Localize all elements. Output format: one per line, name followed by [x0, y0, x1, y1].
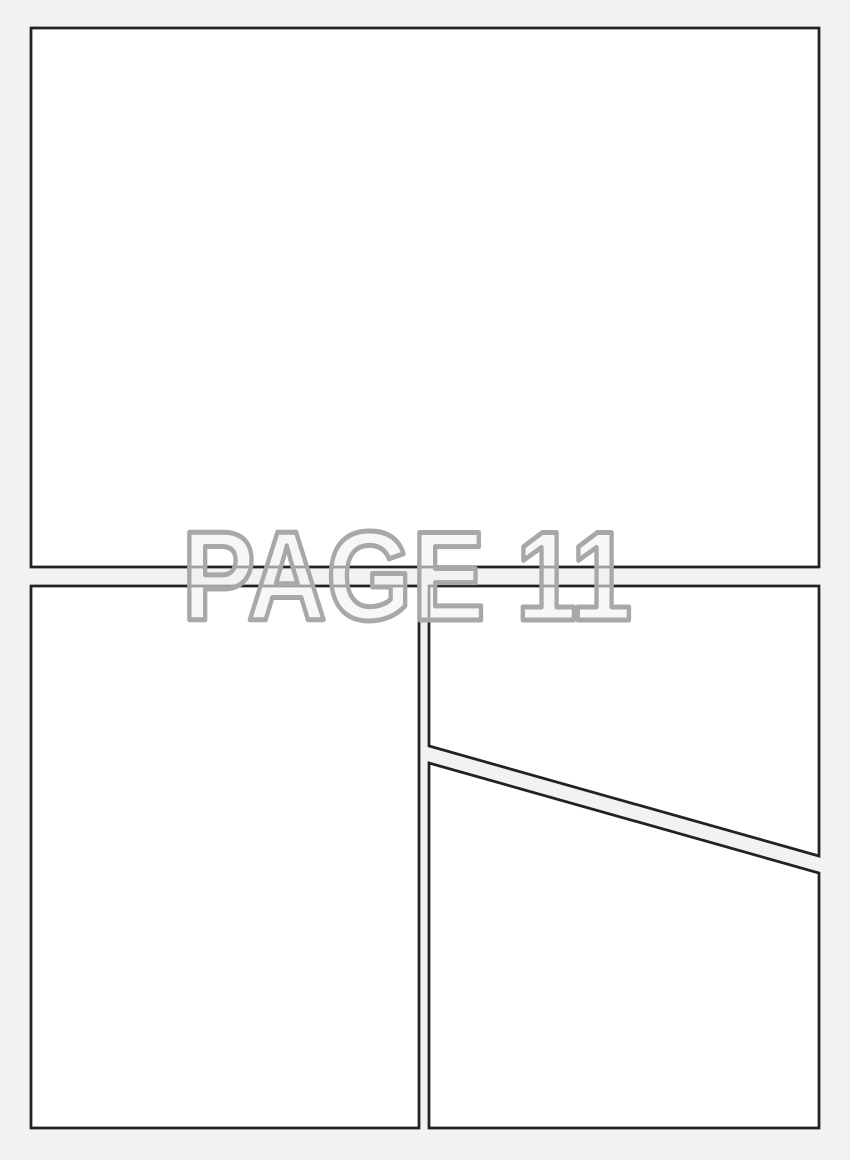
panel-top: [31, 28, 819, 567]
comic-page-template: PAGE 11: [0, 0, 850, 1160]
page-canvas: PAGE 11: [0, 0, 850, 1160]
page-number-label: PAGE 11: [182, 505, 632, 647]
panel-bottom-left: [31, 586, 419, 1128]
